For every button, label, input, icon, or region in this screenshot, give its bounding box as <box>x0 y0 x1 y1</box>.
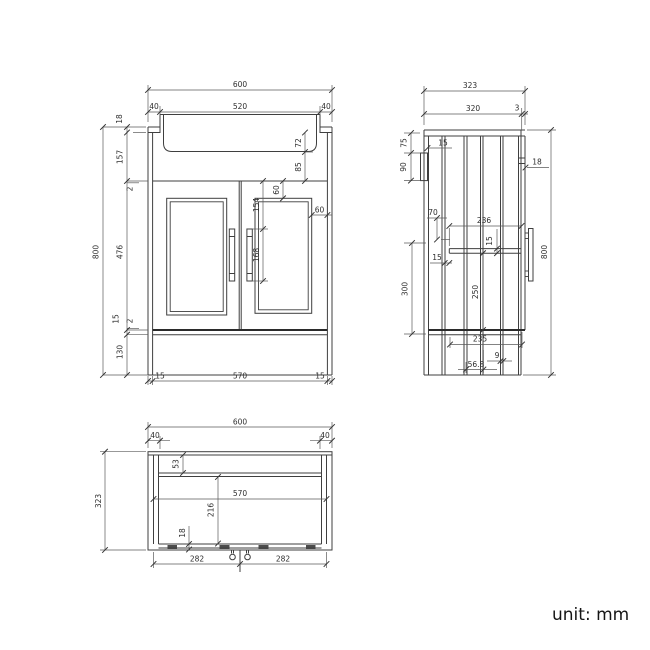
dim-side-shelf-thickness: 15 <box>485 236 494 246</box>
dim-plan-overall-depth: 323 <box>94 494 103 509</box>
dim-front-overall-height: 800 <box>92 245 101 260</box>
front-dimensions: 600 40 520 40 18 157 2 476 15 2 130 800 … <box>92 80 335 385</box>
dim-front-door-height: 476 <box>116 245 125 260</box>
dim-front-handle-length: 168 <box>252 248 261 263</box>
dim-side-bracket-thickness: 15 <box>438 139 448 148</box>
left-handle-knob <box>230 554 236 560</box>
dim-side-bracket-height: 90 <box>399 162 408 172</box>
dim-side-back-rail-offset: 70 <box>428 208 438 217</box>
dim-plan-back-rail-depth: 53 <box>172 459 181 469</box>
side-handle-stem-top <box>525 233 529 239</box>
dim-side-door-offset: 3 <box>515 104 520 113</box>
dim-side-overall-depth: 323 <box>463 81 478 90</box>
dim-front-plinth-inset-right: 15 <box>315 372 325 381</box>
dim-side-carcass-depth: 320 <box>466 104 481 113</box>
dim-side-shelf-to-bottom: 250 <box>471 285 480 300</box>
dim-front-counter-thickness: 18 <box>115 114 124 124</box>
side-handle-bar <box>529 229 534 282</box>
technical-drawing: 600 40 520 40 18 157 2 476 15 2 130 800 … <box>0 0 650 650</box>
unit-label: unit: mm <box>552 605 629 625</box>
dim-plan-interior-width: 570 <box>233 489 248 498</box>
dim-side-door-top-rail: 18 <box>532 158 542 167</box>
plan-dimensions: 600 40 40 323 53 570 216 18 282 282 <box>94 418 335 569</box>
dim-side-overall-height: 800 <box>540 245 549 260</box>
dim-front-overall-width: 600 <box>233 80 248 89</box>
dim-front-basin-to-door: 85 <box>294 162 303 172</box>
dim-front-plinth-height: 130 <box>116 345 125 360</box>
side-view: 323 320 3 75 90 15 18 70 236 15 15 300 2… <box>399 81 556 378</box>
right-handle-knob <box>245 554 251 560</box>
left-door-panel <box>167 198 227 315</box>
dim-front-basin-width: 520 <box>233 102 248 111</box>
dim-side-pipe-offset: 56.8 <box>468 360 485 369</box>
front-view: 600 40 520 40 18 157 2 476 15 2 130 800 … <box>92 80 335 385</box>
dim-plan-overall-width: 600 <box>233 418 248 427</box>
dim-side-pipe-gap: 9 <box>495 351 500 360</box>
dim-side-shelf-back-gap: 15 <box>432 253 442 262</box>
dim-plan-interior-depth: 216 <box>207 503 216 518</box>
side-dimensions: 323 320 3 75 90 15 18 70 236 15 15 300 2… <box>399 81 556 378</box>
dim-plan-side-offset-left: 40 <box>150 431 160 440</box>
dim-front-handle-offset-top: 154 <box>252 198 261 213</box>
dim-plan-front-rail-thickness: 18 <box>178 528 187 538</box>
right-door-panel-inner <box>259 202 309 310</box>
dim-front-bottom-rail: 15 <box>112 314 121 324</box>
dim-side-interior-depth: 236 <box>477 216 492 225</box>
plan-view: 600 40 40 323 53 570 216 18 282 282 <box>94 418 335 573</box>
front-structure <box>148 115 332 376</box>
dim-side-interior-height: 300 <box>401 282 410 297</box>
dim-front-plinth-inset-left: 15 <box>155 372 165 381</box>
dim-front-plinth-width: 570 <box>233 372 248 381</box>
dim-front-upper-section: 157 <box>116 150 125 165</box>
dim-side-bracket-offset-top: 75 <box>400 138 409 148</box>
right-door-panel <box>255 198 312 313</box>
dim-side-bottom-interior-depth: 235 <box>473 335 488 344</box>
left-door-panel-inner <box>170 202 223 312</box>
dim-front-panel-side-inset: 60 <box>315 206 325 215</box>
dim-front-panel-top-inset: 60 <box>272 185 281 195</box>
dim-plan-handle-span-left: 282 <box>190 555 205 564</box>
dim-front-basin-depth: 72 <box>294 138 303 148</box>
side-handle-stem-bottom <box>525 271 529 277</box>
dim-plan-handle-span-right: 282 <box>276 555 291 564</box>
